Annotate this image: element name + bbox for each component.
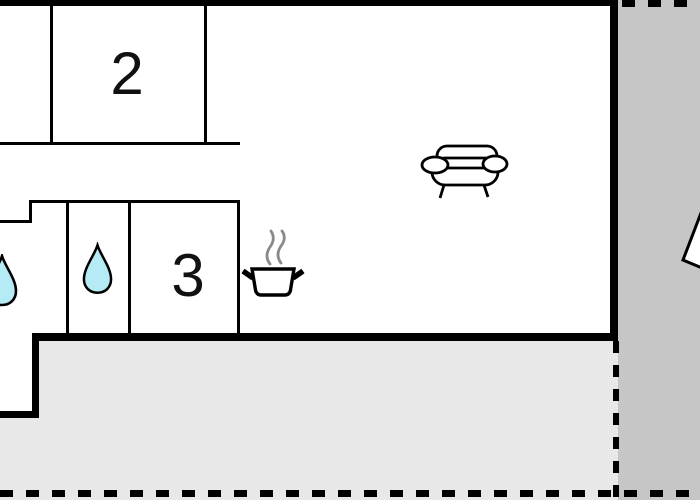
wall-hallway [0,142,240,145]
wall-top [0,0,618,6]
wall-notch-bottom [0,411,39,418]
terrace-bottom-area [0,341,618,500]
sofa-icon [420,143,510,200]
wall-block-step-horizontal [0,220,32,223]
wall-bottom [32,333,618,341]
water-drop-icon [0,254,18,307]
dashed-border-top [622,0,700,7]
house-notch-bottom-left [0,333,32,412]
wall-bath-divider-1 [66,200,69,333]
water-drop-icon [82,242,113,296]
dashed-border-middle [613,341,619,500]
parasol-fragment-icon [678,185,700,275]
wall-bath-divider-2 [128,200,131,333]
wall-room2-left [50,6,53,145]
wall-right [610,0,618,341]
room-3-label: 3 [158,246,218,306]
dashed-border-bottom [0,490,700,497]
wall-room2-right [204,6,207,145]
wall-notch-right [32,333,39,418]
wall-block-top [29,200,240,203]
cooking-pot-icon [240,226,306,298]
room-2-label: 2 [97,44,157,104]
steam-icon [267,231,284,264]
floor-plan: 2 3 [0,0,700,500]
